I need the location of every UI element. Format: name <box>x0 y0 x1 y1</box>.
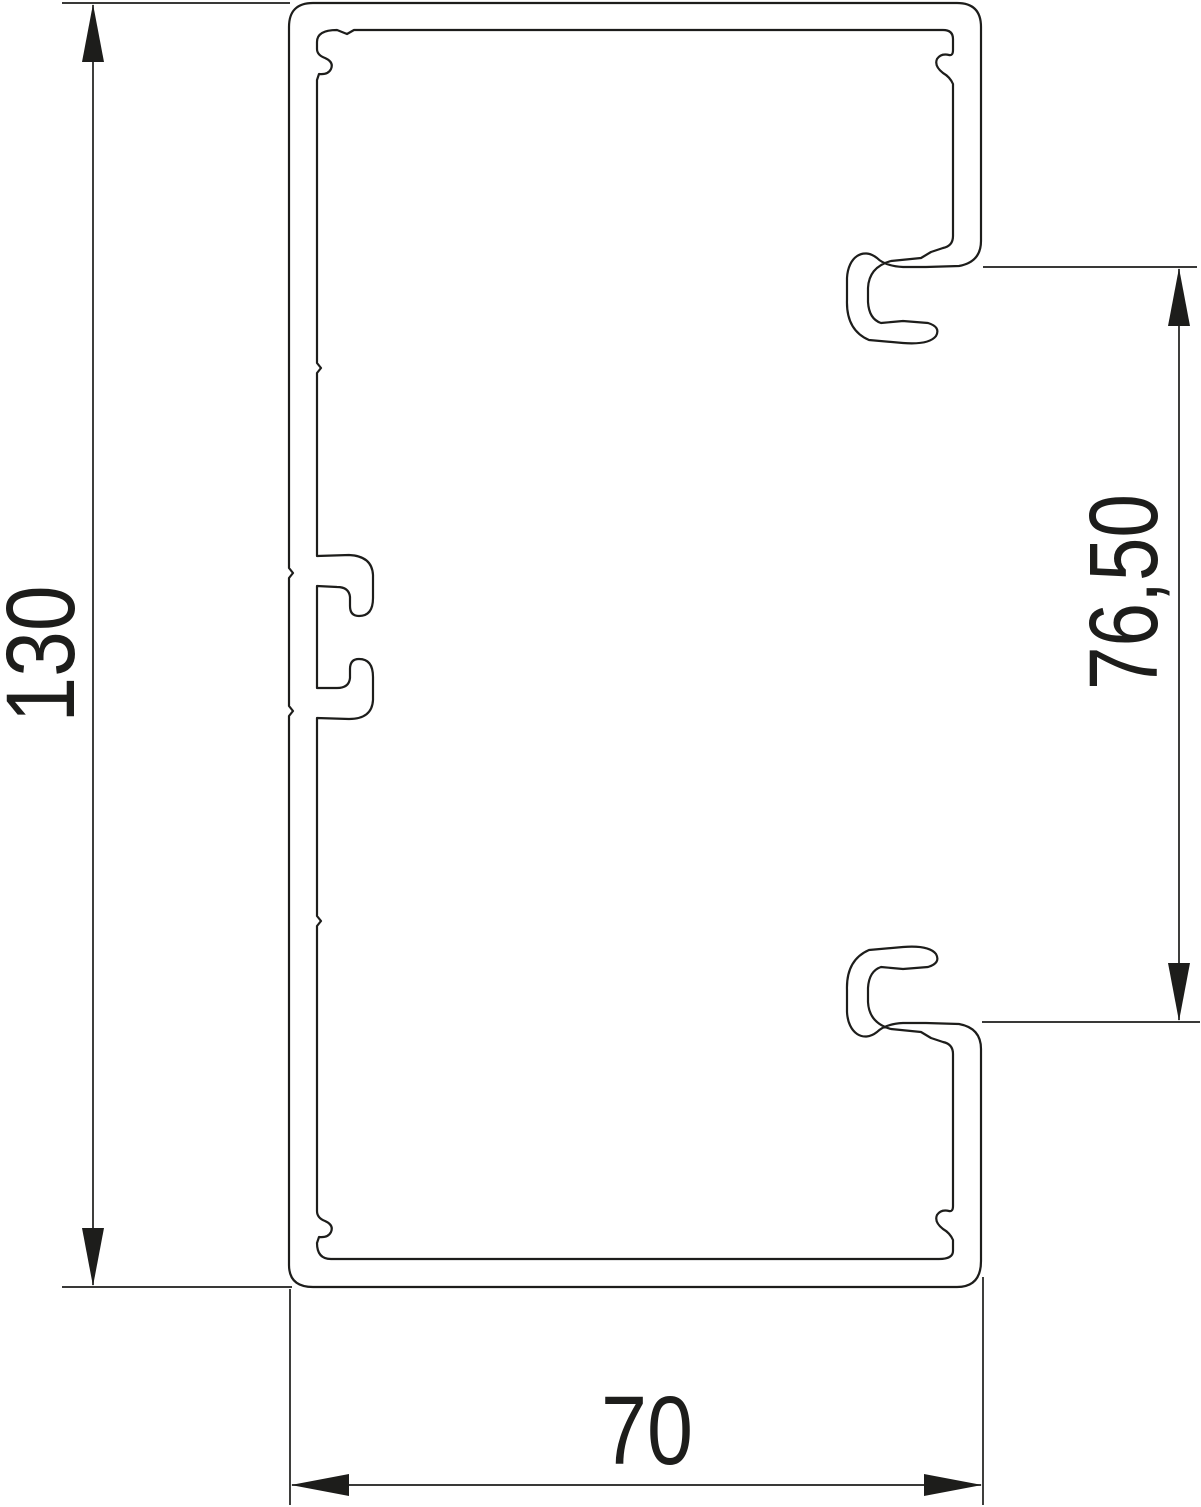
width-arrow-left-icon <box>291 1474 349 1496</box>
dimension-overall-width: 70 <box>290 1277 983 1505</box>
width-dimension-value: 70 <box>601 1376 693 1485</box>
trunking-profile-outline <box>289 3 981 1287</box>
dimension-overall-height: 130 <box>0 3 292 1287</box>
height-arrow-down-icon <box>82 1228 104 1286</box>
dimension-front-opening: 76,50 <box>982 267 1200 1022</box>
opening-dimension-value: 76,50 <box>1069 494 1178 690</box>
height-arrow-up-icon <box>82 4 104 62</box>
technical-drawing-canvas: 130 76,50 70 <box>0 0 1201 1507</box>
height-dimension-value: 130 <box>0 586 95 723</box>
opening-arrow-down-icon <box>1168 963 1190 1021</box>
drawing-svg: 130 76,50 70 <box>0 0 1201 1507</box>
width-arrow-right-icon <box>924 1474 982 1496</box>
opening-arrow-up-icon <box>1168 268 1190 326</box>
